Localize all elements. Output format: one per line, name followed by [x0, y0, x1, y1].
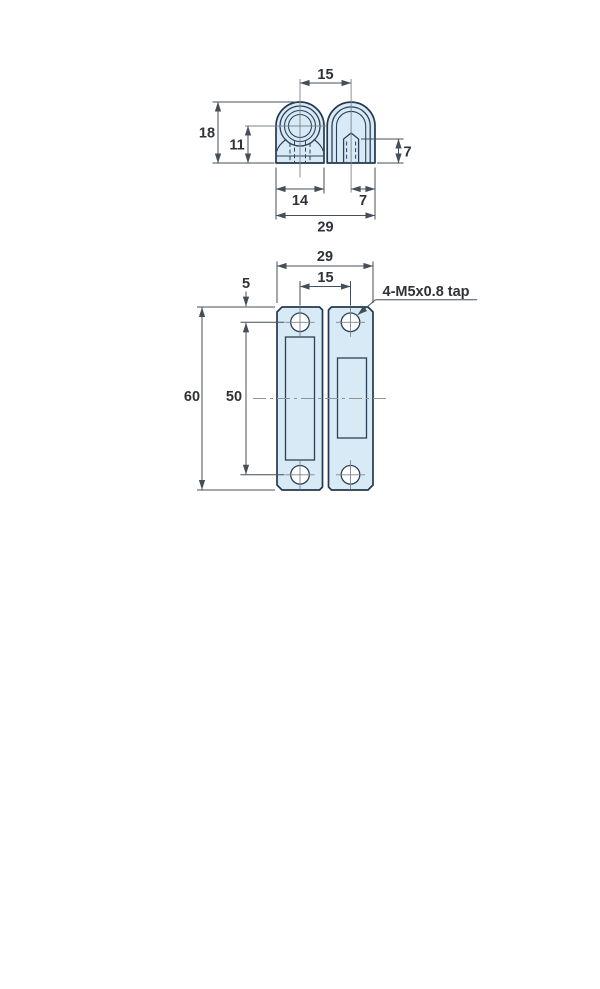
- dim-label-15: 15: [317, 67, 333, 83]
- dim-label-18: 18: [199, 126, 215, 142]
- front-view: 29 15 5 50 60 4-M5x0.8 tap: [184, 249, 477, 490]
- dim-label-15: 15: [317, 270, 333, 286]
- dim-label-14: 14: [292, 193, 308, 209]
- dim-label-60: 60: [184, 389, 200, 405]
- dim-label-7-depth: 7: [403, 145, 411, 161]
- dim-label-50: 50: [226, 389, 242, 405]
- dim-label-5: 5: [242, 276, 250, 292]
- dim-label-7-offset: 7: [359, 193, 367, 209]
- top-view: 15 18 11 7 14 7 2: [199, 67, 412, 236]
- technical-drawing: 15 18 11 7 14 7 2: [0, 0, 600, 989]
- dim-label-11: 11: [229, 138, 244, 154]
- dim-label-29: 29: [317, 220, 333, 236]
- tap-note-label: 4-M5x0.8 tap: [383, 284, 470, 300]
- dim-label-29: 29: [317, 249, 333, 265]
